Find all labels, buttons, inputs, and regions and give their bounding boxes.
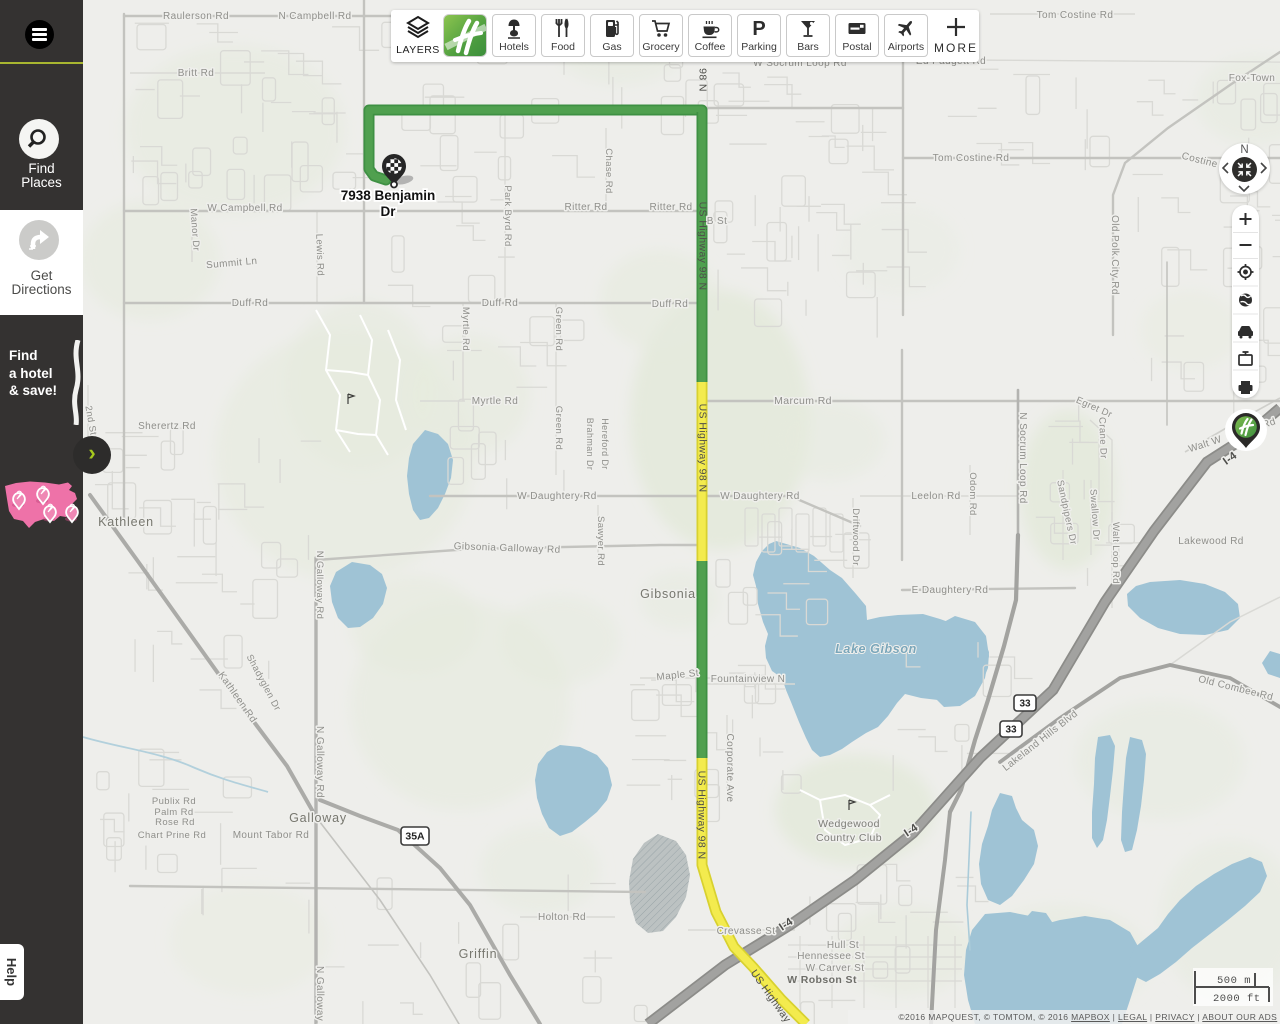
svg-text:Duff Rd: Duff Rd xyxy=(652,299,689,310)
svg-text:Galloway: Galloway xyxy=(289,811,347,825)
svg-text:Corporate Ave: Corporate Ave xyxy=(724,734,735,803)
svg-text:Tom Costine Rd: Tom Costine Rd xyxy=(1037,10,1114,21)
svg-text:W Campbell Rd: W Campbell Rd xyxy=(207,203,282,214)
svg-text:Brahman Dr: Brahman Dr xyxy=(585,418,595,471)
svg-text:Hereford Dr: Hereford Dr xyxy=(600,418,610,469)
svg-text:Kathleen: Kathleen xyxy=(98,515,154,529)
svg-text:Walt Loop Rd: Walt Loop Rd xyxy=(1110,522,1121,584)
svg-text:Old Polk City Rd: Old Polk City Rd xyxy=(1109,215,1120,295)
svg-text:Duff Rd: Duff Rd xyxy=(482,298,519,309)
svg-text:B St: B St xyxy=(707,216,728,227)
svg-text:Dr: Dr xyxy=(380,204,396,219)
svg-text:Britt Rd: Britt Rd xyxy=(178,68,215,79)
svg-text:Wedgewood: Wedgewood xyxy=(818,818,880,830)
svg-text:Hennessee St: Hennessee St xyxy=(797,951,865,962)
svg-text:7938 Benjamin: 7938 Benjamin xyxy=(341,188,436,203)
svg-text:Duff Rd: Duff Rd xyxy=(232,298,269,309)
svg-text:W Carver St: W Carver St xyxy=(806,963,865,974)
svg-text:P: P xyxy=(752,18,765,39)
svg-text:Myrtle Rd: Myrtle Rd xyxy=(472,396,518,407)
svg-text:Driftwood Dr: Driftwood Dr xyxy=(850,508,861,566)
svg-text:W Robson St: W Robson St xyxy=(787,974,857,986)
svg-text:US Highway 98 N: US Highway 98 N xyxy=(697,202,709,291)
svg-text:Ritter Rd: Ritter Rd xyxy=(649,202,692,213)
svg-text:N Galloway Rd: N Galloway Rd xyxy=(314,726,325,798)
svg-text:Sherertz Rd: Sherertz Rd xyxy=(138,421,196,432)
svg-text:N Socrum Loop Rd: N Socrum Loop Rd xyxy=(1017,412,1028,503)
svg-text:Lake Gibson: Lake Gibson xyxy=(835,642,917,656)
svg-text:Crevasse St: Crevasse St xyxy=(717,926,776,937)
svg-text:Crane Dr: Crane Dr xyxy=(1096,417,1108,459)
svg-text:98 N: 98 N xyxy=(697,68,709,92)
svg-text:Raulerson Rd: Raulerson Rd xyxy=(163,11,229,22)
svg-text:Park Byrd Rd: Park Byrd Rd xyxy=(502,185,513,246)
svg-text:Tom Costine Rd: Tom Costine Rd xyxy=(933,153,1010,164)
svg-text:Griffin: Griffin xyxy=(459,947,498,961)
svg-text:W Daughtery Rd: W Daughtery Rd xyxy=(720,491,800,502)
svg-text:Marcum Rd: Marcum Rd xyxy=(774,395,832,407)
svg-text:Publix Rd: Publix Rd xyxy=(152,796,196,807)
svg-text:Hull St: Hull St xyxy=(827,940,859,951)
svg-text:Lewis Rd: Lewis Rd xyxy=(313,234,325,277)
svg-text:33: 33 xyxy=(1019,699,1031,710)
svg-text:E Daughtery Rd: E Daughtery Rd xyxy=(912,585,989,596)
svg-text:Chase Rd: Chase Rd xyxy=(603,148,614,193)
svg-text:Lakewood Rd: Lakewood Rd xyxy=(1178,536,1244,547)
svg-text:Mount Tabor Rd: Mount Tabor Rd xyxy=(233,830,310,841)
svg-text:2000 ft: 2000 ft xyxy=(1213,993,1261,1005)
svg-text:Fox-Town: Fox-Town xyxy=(1229,73,1276,84)
svg-text:Sawyer Rd: Sawyer Rd xyxy=(595,516,606,566)
svg-text:N Galloway Rd: N Galloway Rd xyxy=(314,551,325,620)
svg-text:US Highway 98 N: US Highway 98 N xyxy=(696,771,708,860)
svg-text:Odom Rd: Odom Rd xyxy=(967,472,978,515)
svg-text:35A: 35A xyxy=(405,831,425,843)
svg-text:Holton Rd: Holton Rd xyxy=(538,912,586,923)
svg-text:500 m: 500 m xyxy=(1217,975,1251,987)
svg-text:W Daughtery Rd: W Daughtery Rd xyxy=(517,491,597,502)
svg-text:Leelon Rd: Leelon Rd xyxy=(911,491,960,502)
svg-text:Green Rd: Green Rd xyxy=(553,406,564,450)
svg-text:Country Club: Country Club xyxy=(816,832,882,844)
svg-text:US Highway 98 N: US Highway 98 N xyxy=(697,404,709,493)
svg-text:Myrtle Rd: Myrtle Rd xyxy=(460,307,471,351)
svg-text:Fountainview N: Fountainview N xyxy=(711,674,786,685)
svg-text:Ritter Rd: Ritter Rd xyxy=(564,202,607,213)
svg-text:33: 33 xyxy=(1005,725,1017,736)
svg-text:Green Rd: Green Rd xyxy=(553,307,564,351)
svg-text:N Campbell Rd: N Campbell Rd xyxy=(278,11,351,22)
svg-text:Gibsonia: Gibsonia xyxy=(640,587,696,601)
svg-text:Chart Prine Rd: Chart Prine Rd xyxy=(138,830,206,841)
svg-text:N Galloway Rd: N Galloway Rd xyxy=(314,966,325,1024)
svg-text:Rose Rd: Rose Rd xyxy=(155,817,195,828)
